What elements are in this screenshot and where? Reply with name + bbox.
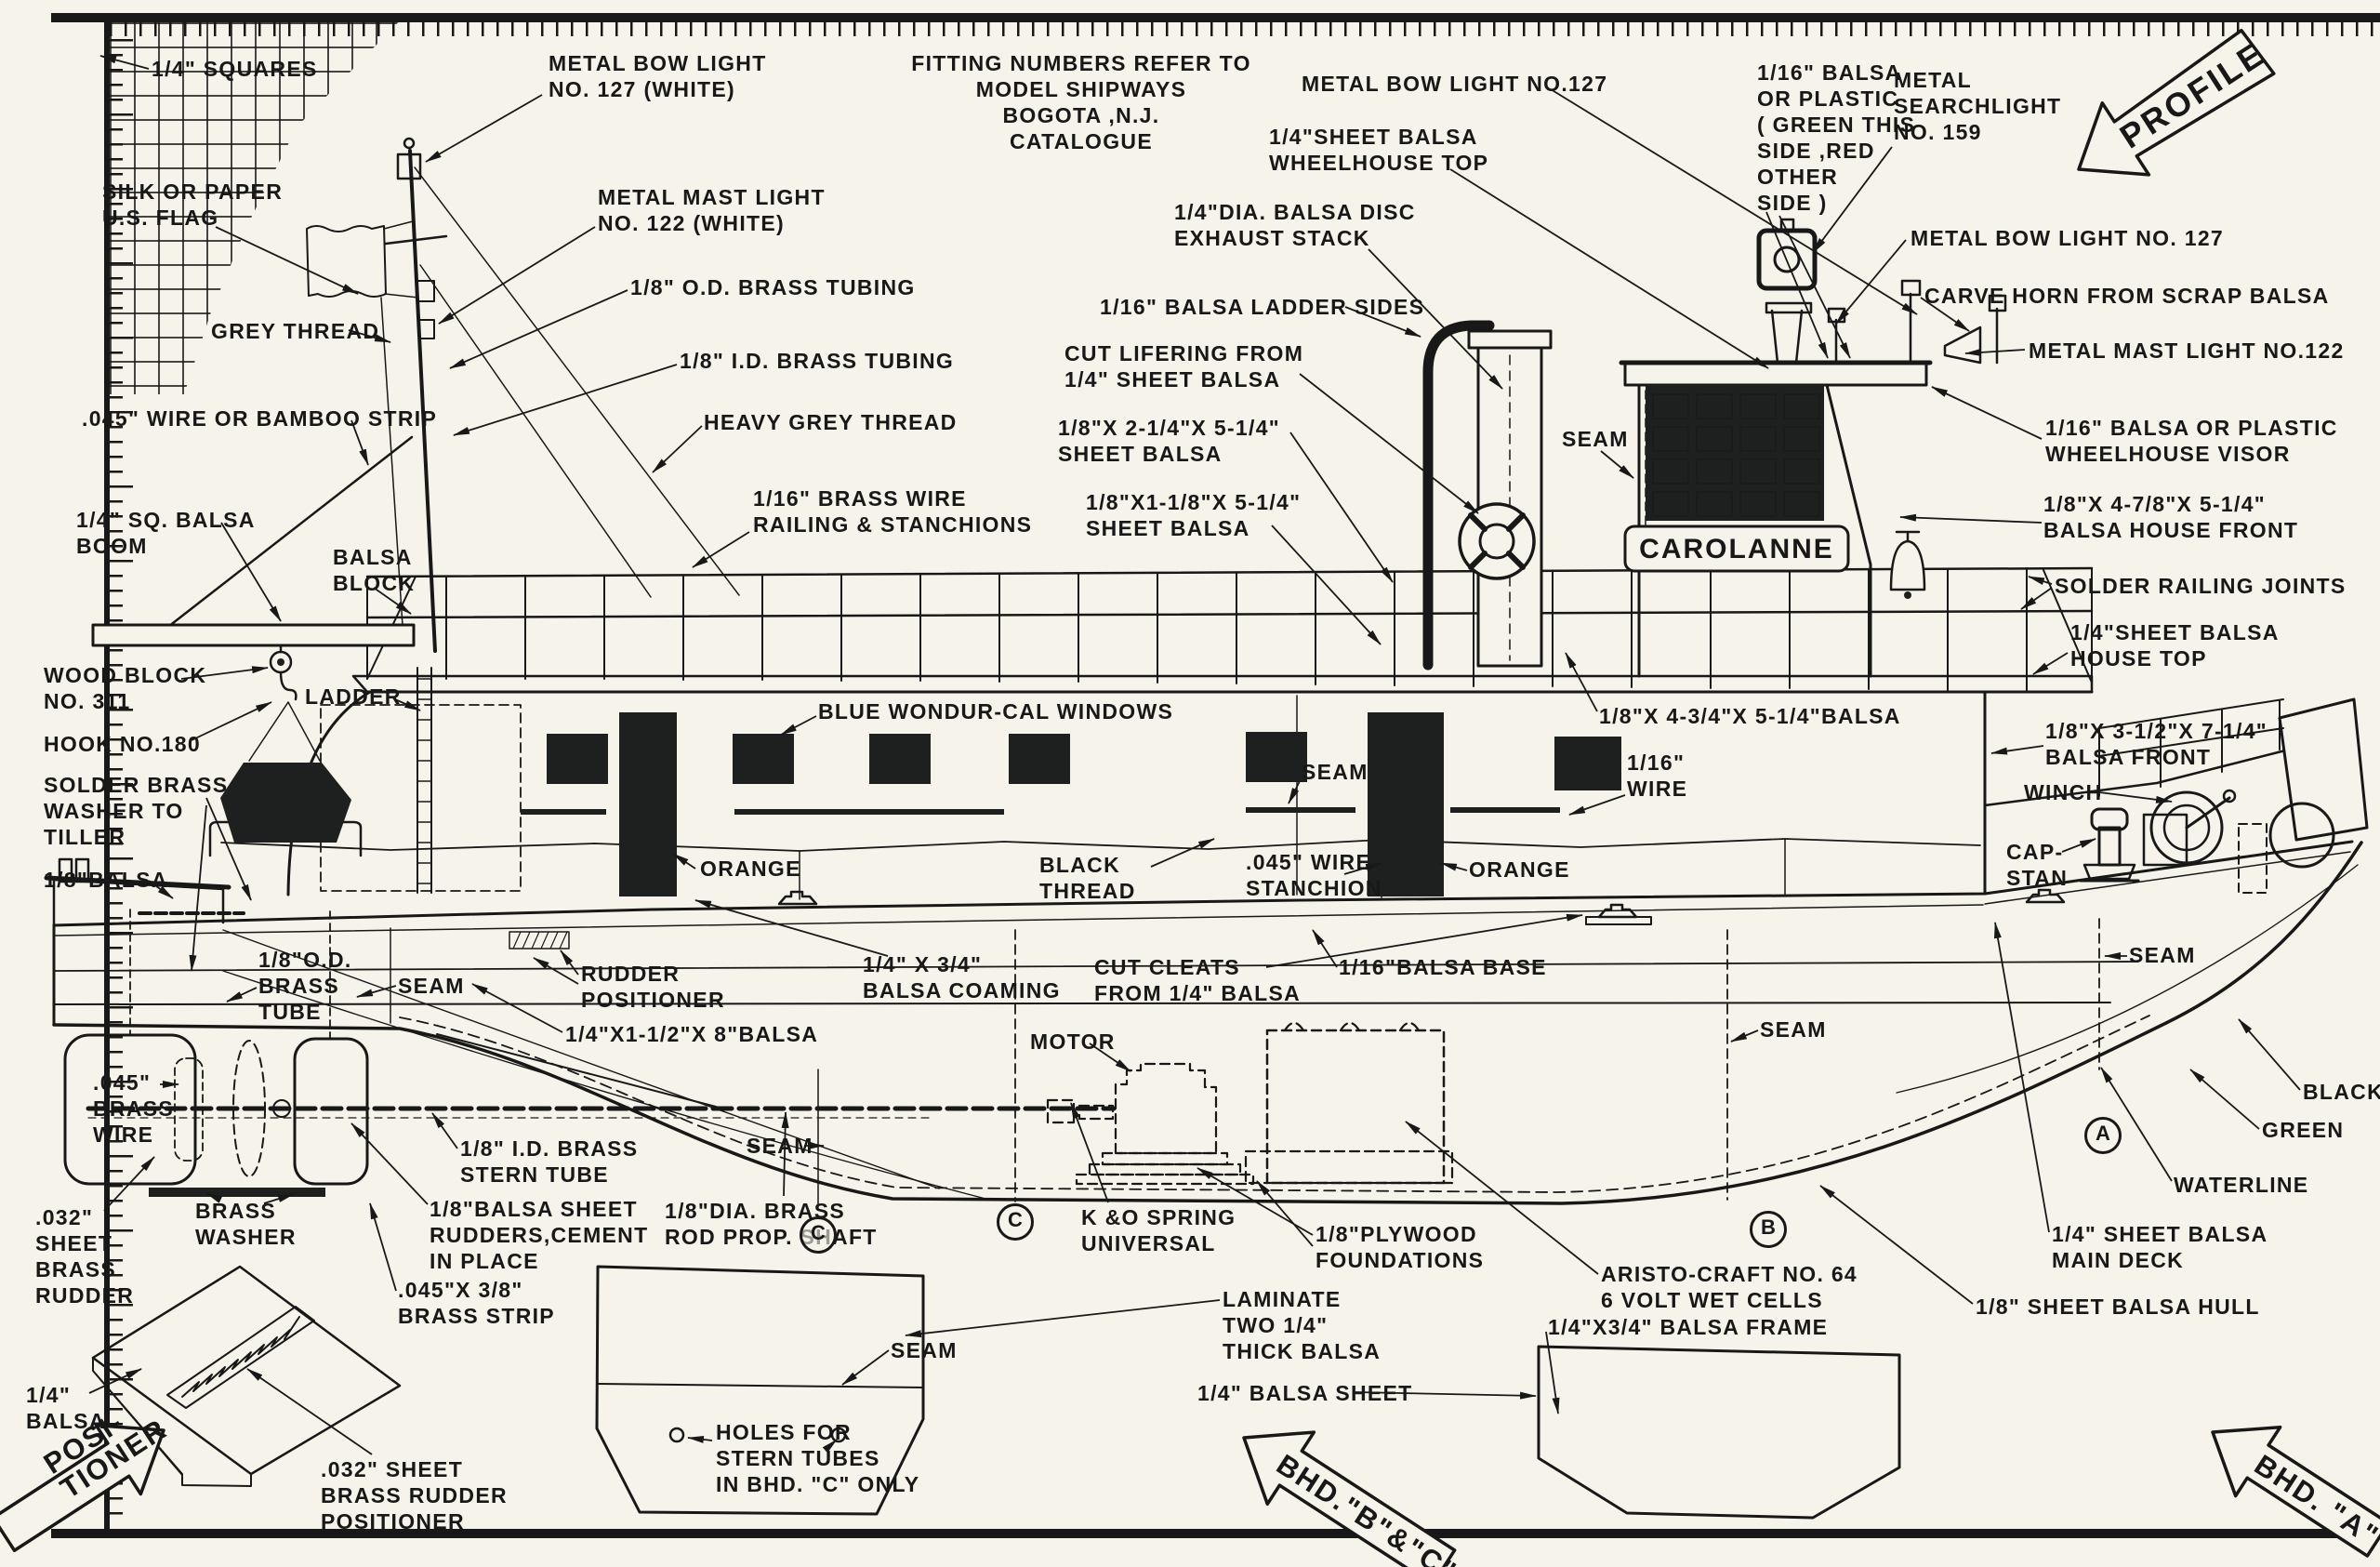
leader-line bbox=[1779, 216, 1850, 358]
leader-line bbox=[1813, 147, 1892, 253]
leader-line bbox=[2029, 577, 2052, 584]
leader-line bbox=[1406, 1122, 1598, 1274]
leader-line bbox=[2101, 1068, 2172, 1181]
leader-line bbox=[351, 1123, 428, 1204]
blueprint-page: CAROLANNE bbox=[0, 0, 2380, 1567]
leader-line bbox=[1601, 451, 1633, 478]
leader-line bbox=[1290, 432, 1393, 582]
leader-line bbox=[206, 798, 251, 900]
leader-line bbox=[781, 716, 816, 735]
leader-line bbox=[1345, 307, 1421, 337]
leader-line bbox=[1368, 249, 1502, 389]
leader-line bbox=[192, 805, 206, 971]
leader-line bbox=[1300, 374, 1478, 513]
leader-line bbox=[1731, 1030, 1758, 1042]
leader-line bbox=[1991, 746, 2043, 753]
leader-line bbox=[2062, 839, 2096, 852]
leader-line bbox=[695, 900, 888, 956]
leader-line bbox=[454, 365, 677, 435]
leader-line bbox=[2190, 1069, 2259, 1129]
leader-line bbox=[673, 854, 695, 869]
leader-line bbox=[1272, 525, 1381, 644]
leader-line bbox=[906, 1300, 1220, 1335]
leader-line bbox=[432, 1113, 457, 1149]
leader-line bbox=[1569, 795, 1625, 815]
leader-line bbox=[1344, 863, 1382, 874]
leader-line bbox=[534, 958, 578, 984]
leader-line bbox=[2033, 653, 2068, 674]
leader-line bbox=[206, 1193, 220, 1200]
leader-line bbox=[221, 523, 281, 621]
leader-line bbox=[149, 881, 173, 898]
leader-line bbox=[842, 1350, 889, 1385]
leader-line bbox=[426, 95, 542, 162]
leader-line bbox=[561, 950, 578, 975]
leader-line bbox=[1995, 923, 2049, 1232]
leader-line bbox=[216, 227, 358, 294]
leader-line bbox=[2099, 792, 2172, 802]
leader-line bbox=[1266, 915, 1582, 967]
leader-line bbox=[357, 986, 396, 997]
leader-line bbox=[89, 1369, 141, 1393]
leader-line bbox=[395, 699, 420, 710]
leader-line bbox=[1820, 1186, 1973, 1304]
leader-line bbox=[264, 1194, 294, 1203]
leader-line bbox=[192, 702, 271, 740]
leader-line bbox=[1071, 1103, 1108, 1202]
leader-line bbox=[104, 1157, 154, 1211]
leader-line bbox=[247, 1369, 372, 1454]
leader-line bbox=[100, 56, 149, 69]
leader-line bbox=[1441, 863, 1467, 870]
leader-line bbox=[1313, 930, 1337, 967]
leader-line bbox=[1921, 298, 1969, 331]
leader-line bbox=[1450, 169, 1768, 368]
leader-line bbox=[1766, 212, 1828, 358]
leader-line bbox=[227, 988, 257, 1002]
leader-line bbox=[1900, 517, 2042, 523]
leader-line bbox=[1836, 240, 1906, 324]
leader-line bbox=[1965, 350, 2025, 353]
leader-line bbox=[181, 668, 268, 679]
leader-line bbox=[653, 426, 702, 472]
leader-line bbox=[1151, 839, 1214, 867]
leader-line bbox=[349, 330, 390, 342]
leader-line bbox=[450, 290, 628, 368]
leader-line bbox=[2021, 588, 2052, 609]
leader-line bbox=[1551, 89, 1917, 314]
leader-lines bbox=[0, 0, 2380, 1567]
leader-line bbox=[2239, 1019, 2300, 1090]
leader-line bbox=[1932, 387, 2042, 439]
leader-line bbox=[370, 1203, 396, 1291]
leader-line bbox=[688, 1438, 712, 1441]
leader-line bbox=[827, 1440, 837, 1448]
leader-line bbox=[351, 420, 368, 465]
leader-line bbox=[784, 1112, 786, 1196]
leader-line bbox=[1289, 781, 1300, 803]
leader-line bbox=[1546, 1332, 1558, 1414]
leader-line bbox=[693, 532, 749, 567]
leader-line bbox=[439, 227, 595, 324]
leader-line bbox=[472, 984, 562, 1032]
leader-line bbox=[1090, 1043, 1130, 1071]
leader-line bbox=[1257, 1181, 1313, 1246]
leader-line bbox=[374, 588, 411, 614]
leader-line bbox=[1355, 1392, 1536, 1396]
leader-line bbox=[1566, 653, 1597, 711]
